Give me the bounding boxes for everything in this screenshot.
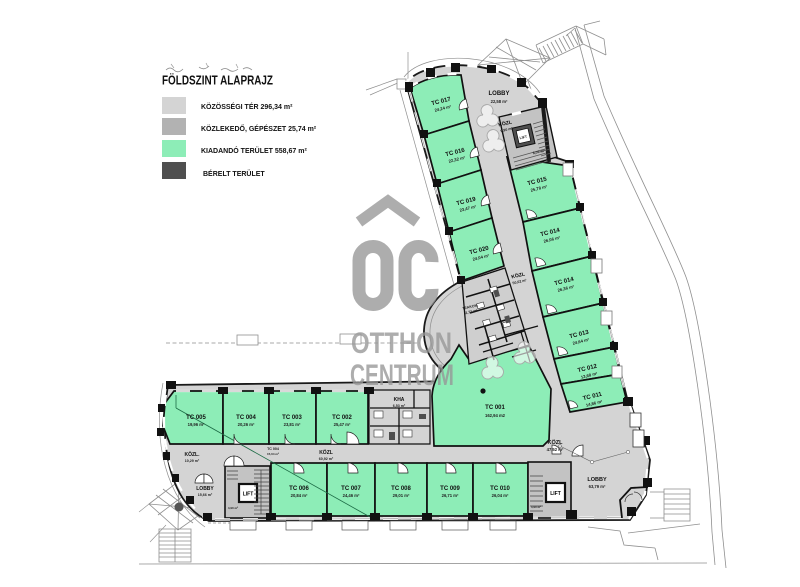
svg-text:TC 009: TC 009 [440,486,460,492]
svg-text:23,81 m²: 23,81 m² [284,422,301,427]
svg-text:29,01 m²: 29,01 m² [393,493,410,498]
svg-text:FÖLDSZINT ALAPRAJZ: FÖLDSZINT ALAPRAJZ [162,73,273,88]
svg-text:TC 010: TC 010 [490,486,510,492]
svg-text:KÖZL.: KÖZL. [185,451,201,458]
svg-text:6,53 m²: 6,53 m² [393,404,406,408]
svg-text:TC 002: TC 002 [332,415,352,421]
svg-text:KHA: KHA [394,397,405,403]
svg-text:KÖZL: KÖZL [548,439,564,446]
svg-text:4,90 m²: 4,90 m² [531,505,541,509]
svg-text:OTTHON: OTTHON [351,327,452,360]
svg-text:26,71 m²: 26,71 m² [442,493,459,498]
svg-text:26,04 m²: 26,04 m² [492,493,509,498]
svg-text:LOBBY: LOBBY [587,477,607,483]
svg-text:LOBBY: LOBBY [196,486,214,492]
svg-text:25,47 m²: 25,47 m² [334,422,351,427]
svg-text:BÉRELT TERÜLET: BÉRELT TERÜLET [203,169,265,178]
svg-text:TC 005: TC 005 [186,415,206,421]
svg-text:19,96 m²: 19,96 m² [188,422,205,427]
svg-text:20,26 m²: 20,26 m² [238,422,255,427]
svg-text:TC 003: TC 003 [282,415,302,421]
svg-text:LIFT: LIFT [243,492,254,498]
svg-text:4,90 m²: 4,90 m² [228,506,238,510]
svg-text:KIADANDÓ TERÜLET 558,67 m²: KIADANDÓ TERÜLET 558,67 m² [201,146,307,155]
svg-text:20,84 m²: 20,84 m² [291,493,308,498]
svg-text:22,58 m²: 22,58 m² [491,99,508,104]
svg-text:TC 008: TC 008 [391,486,411,492]
svg-text:LIFT: LIFT [550,491,561,497]
svg-text:10,29 m²: 10,29 m² [185,459,200,463]
svg-text:TC 001: TC 001 [485,405,505,411]
svg-text:63,79 m²: 63,79 m² [589,484,606,489]
svg-text:60,92 m²: 60,92 m² [319,457,334,461]
svg-text:CENTRUM: CENTRUM [350,359,454,392]
svg-text:15,66 m²: 15,66 m² [198,493,213,497]
svg-text:TC 007: TC 007 [341,486,361,492]
svg-text:24,46 m²: 24,46 m² [343,493,360,498]
svg-text:162,94 m2: 162,94 m2 [485,413,506,418]
svg-text:KÖZL: KÖZL [319,449,333,456]
svg-text:TC 006: TC 006 [289,486,309,492]
svg-text:LOBBY: LOBBY [489,91,510,97]
svg-text:15,04 m²: 15,04 m² [267,452,279,456]
svg-text:TC 004: TC 004 [236,415,256,421]
svg-text:47,52 m²: 47,52 m² [547,447,564,452]
svg-text:KÖZLEKEDŐ, GÉPÉSZET 25,74 m²: KÖZLEKEDŐ, GÉPÉSZET 25,74 m² [201,124,317,133]
svg-text:TC 004: TC 004 [267,447,279,451]
svg-text:KÖZÖSSÉGI TÉR 296,34 m²: KÖZÖSSÉGI TÉR 296,34 m² [201,102,293,111]
